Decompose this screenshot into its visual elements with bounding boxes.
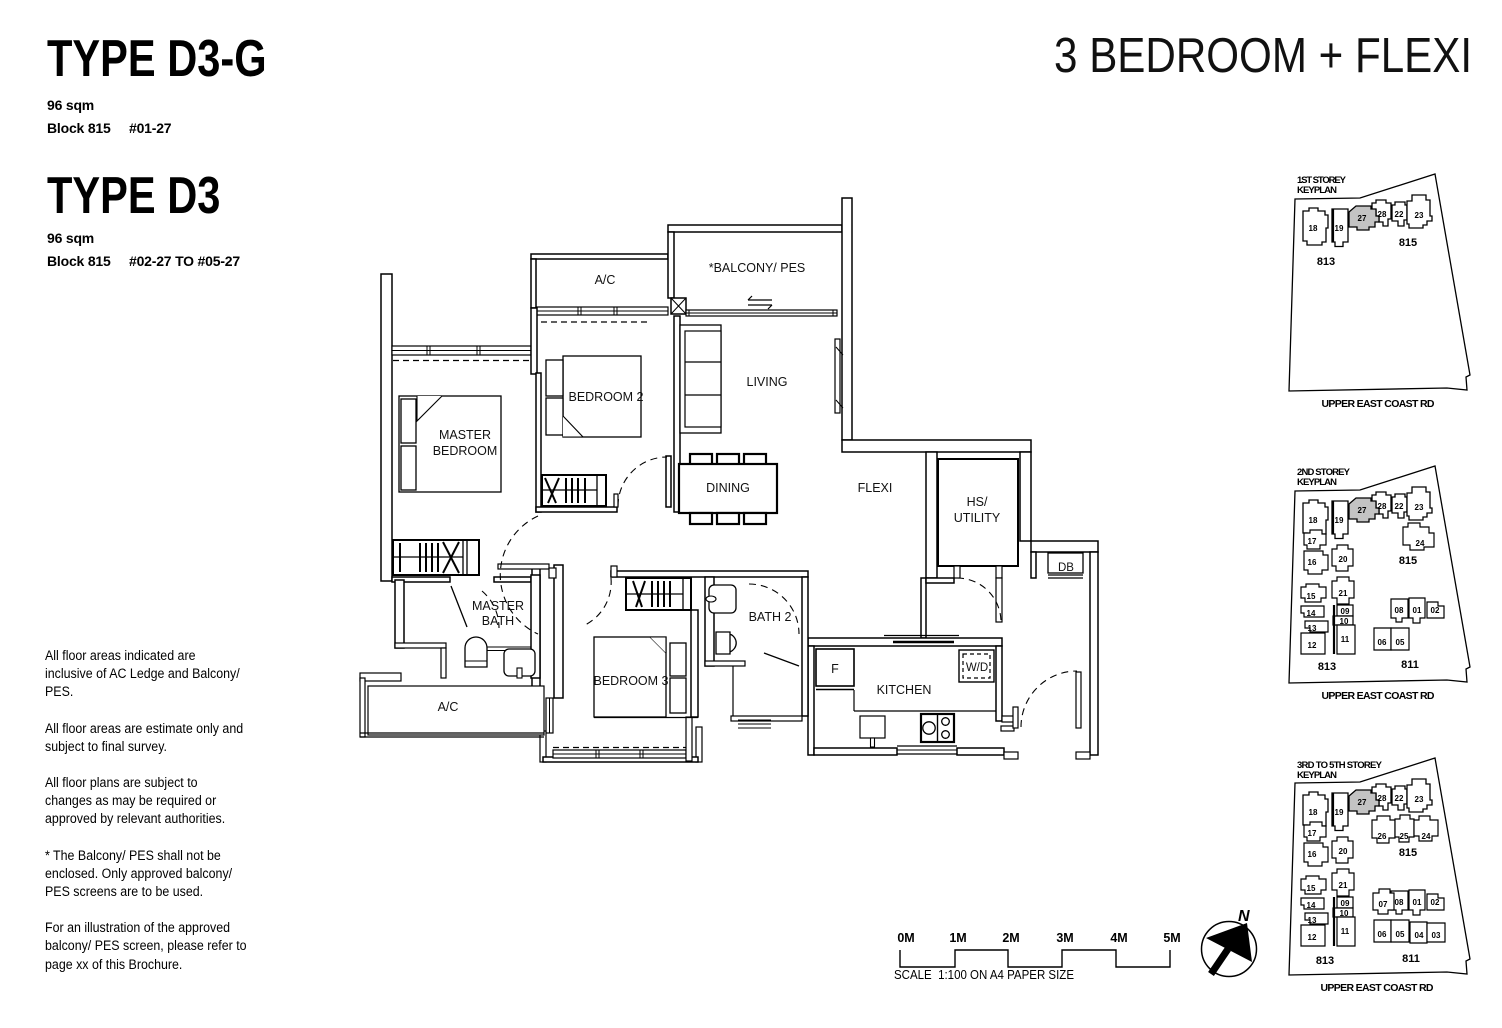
svg-text:815: 815	[1399, 555, 1417, 567]
svg-text:813: 813	[1318, 661, 1336, 673]
svg-text:BATH 2: BATH 2	[749, 610, 792, 624]
svg-text:815: 815	[1399, 237, 1417, 249]
svg-text:FLEXI: FLEXI	[858, 481, 893, 495]
svg-text:24: 24	[1422, 832, 1431, 841]
svg-text:811: 811	[1402, 953, 1420, 965]
svg-text:03: 03	[1432, 931, 1441, 940]
svg-text:24: 24	[1416, 539, 1425, 548]
svg-text:BEDROOM: BEDROOM	[433, 444, 498, 458]
svg-text:HS/: HS/	[967, 495, 988, 509]
svg-text:F: F	[831, 662, 839, 676]
svg-text:DINING: DINING	[706, 481, 750, 495]
svg-text:SCALE 1:100 ON A4 PAPER SIZE: SCALE 1:100 ON A4 PAPER SIZE	[894, 968, 1074, 982]
svg-text:815: 815	[1399, 847, 1417, 859]
svg-text:25: 25	[1400, 832, 1409, 841]
svg-text:KEYPLAN: KEYPLAN	[1297, 770, 1337, 781]
svg-text:KEYPLAN: KEYPLAN	[1297, 185, 1337, 196]
svg-text:2M: 2M	[1002, 931, 1019, 945]
svg-text:MASTER: MASTER	[472, 599, 524, 613]
svg-text:811: 811	[1401, 659, 1419, 671]
svg-text:DB: DB	[1058, 562, 1074, 574]
svg-text:MASTER: MASTER	[439, 428, 491, 442]
svg-text:07: 07	[1379, 900, 1388, 909]
svg-text:LIVING: LIVING	[747, 375, 788, 389]
svg-text:N: N	[1238, 908, 1250, 925]
svg-text:BATH: BATH	[482, 614, 514, 628]
svg-text:813: 813	[1316, 955, 1334, 967]
svg-text:KITCHEN: KITCHEN	[877, 683, 932, 697]
svg-text:UPPER EAST COAST RD: UPPER EAST COAST RD	[1321, 982, 1434, 994]
svg-text:1M: 1M	[949, 931, 966, 945]
svg-text:813: 813	[1317, 256, 1335, 268]
svg-text:*BALCONY/ PES: *BALCONY/ PES	[709, 261, 806, 275]
svg-text:W/D: W/D	[966, 662, 988, 674]
svg-text:UPPER EAST COAST RD: UPPER EAST COAST RD	[1322, 690, 1435, 702]
svg-text:04: 04	[1415, 931, 1424, 940]
svg-text:5M: 5M	[1163, 931, 1180, 945]
svg-text:A/C: A/C	[438, 700, 459, 714]
svg-text:0M: 0M	[897, 931, 914, 945]
svg-text:UPPER EAST COAST RD: UPPER EAST COAST RD	[1322, 398, 1435, 410]
svg-text:BEDROOM 2: BEDROOM 2	[568, 390, 643, 404]
svg-text:A/C: A/C	[595, 273, 616, 287]
svg-text:3M: 3M	[1056, 931, 1073, 945]
svg-text:BEDROOM 3: BEDROOM 3	[593, 674, 668, 688]
svg-text:UTILITY: UTILITY	[954, 511, 1001, 525]
svg-text:26: 26	[1378, 832, 1387, 841]
svg-text:KEYPLAN: KEYPLAN	[1297, 477, 1337, 488]
svg-text:4M: 4M	[1110, 931, 1127, 945]
